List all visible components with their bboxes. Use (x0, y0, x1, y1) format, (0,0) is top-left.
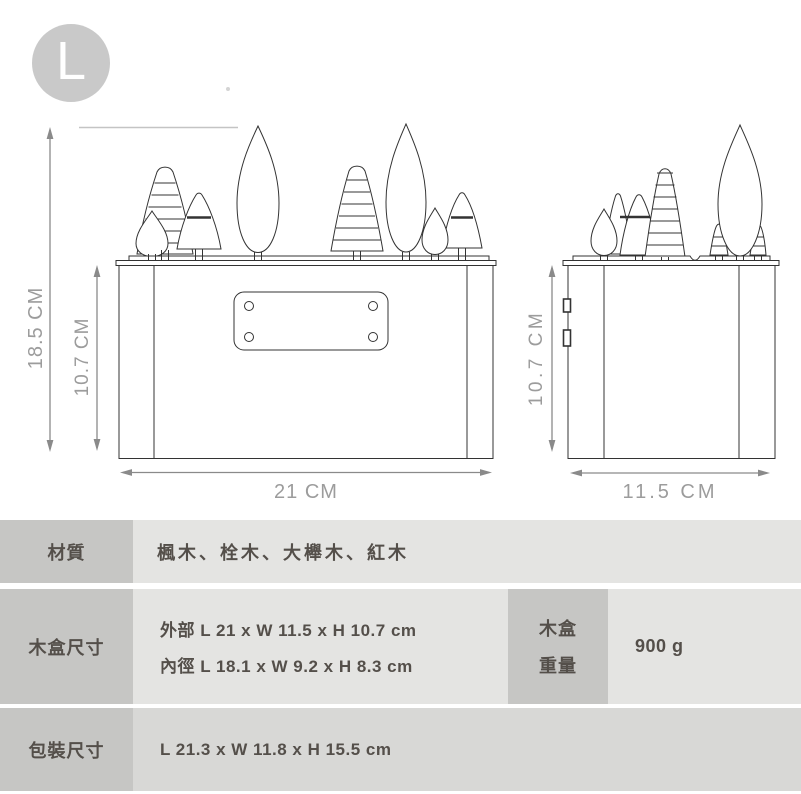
dim-front-box-height: 10.7 CM (72, 318, 93, 397)
box-body (568, 266, 775, 459)
box-size-value: 外部 L 21 x W 11.5 x H 10.7 cm 內徑 L 18.1 x… (133, 589, 508, 704)
latch (564, 330, 571, 346)
cypress-tree (386, 124, 426, 252)
box-size-inner: 內徑 L 18.1 x W 9.2 x H 8.3 cm (160, 652, 413, 677)
box-weight-label: 木盒 重量 (508, 589, 608, 704)
material-label: 材質 (0, 520, 133, 583)
box-lid (116, 261, 496, 266)
layered-tree (645, 169, 685, 257)
latch (564, 299, 571, 312)
name-plate (234, 292, 388, 350)
box-lid (563, 261, 779, 266)
front-view (116, 124, 496, 459)
cone-tree (177, 193, 221, 249)
box-weight-value: 900 g (608, 589, 801, 704)
product-spec-sheet: L (0, 0, 801, 794)
side-view (563, 125, 779, 459)
dim-side-box-height: 10.7 CM (526, 310, 547, 406)
box-size-outer: 外部 L 21 x W 11.5 x H 10.7 cm (160, 616, 417, 641)
layered-tree (331, 166, 383, 251)
package-size-label: 包裝尺寸 (0, 708, 133, 791)
dim-front-total-height: 18.5 CM (25, 287, 47, 370)
material-value: 楓木、栓木、大櫸木、紅木 (133, 520, 801, 583)
package-size-value: L 21.3 x W 11.8 x H 15.5 cm (133, 708, 801, 791)
cypress-tree (718, 125, 762, 256)
dim-side-depth: 11.5 CM (622, 481, 717, 503)
technical-drawing: 18.5 CM 10.7 CM 21 CM 10.7 CM 11.5 CM (0, 0, 801, 515)
dim-front-width: 21 CM (274, 481, 338, 503)
box-size-label: 木盒尺寸 (0, 589, 133, 704)
cypress-tree (237, 126, 279, 253)
